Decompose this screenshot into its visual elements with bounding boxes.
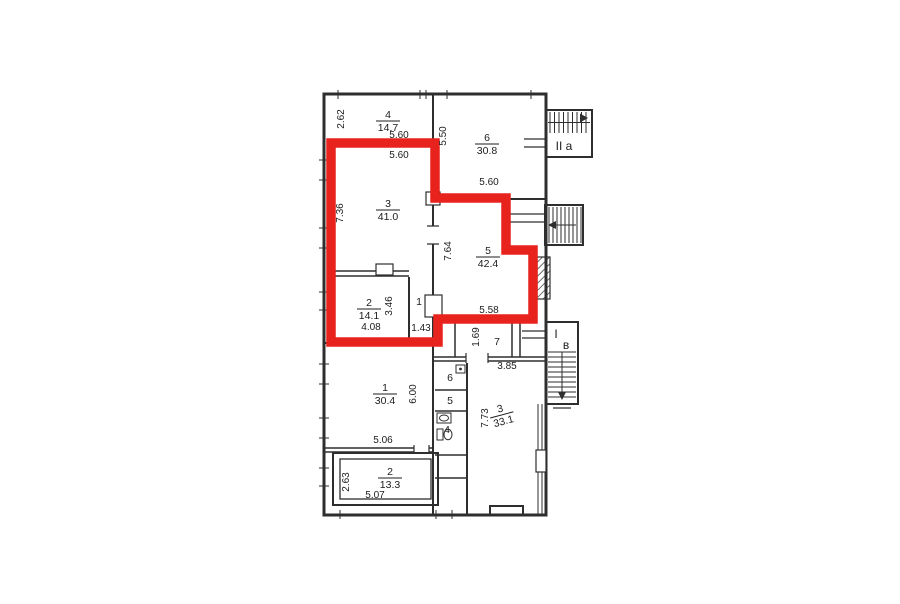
dimension-label: 5.60 <box>479 177 499 188</box>
dimension-label: 7.73 <box>480 408 491 428</box>
svg-text:2: 2 <box>387 466 393 478</box>
svg-text:4: 4 <box>385 109 391 121</box>
window-block <box>536 450 546 472</box>
room-label: 333.1 <box>487 400 517 430</box>
door-block <box>376 264 393 275</box>
dimension-label: 5.60 <box>389 130 409 141</box>
svg-text:30.8: 30.8 <box>477 145 498 157</box>
dimension-label: 3.85 <box>497 361 517 372</box>
room-label: 214.1 <box>357 297 381 322</box>
dimension-label: 7.36 <box>335 203 346 223</box>
svg-text:42.4: 42.4 <box>478 258 499 270</box>
dimension-label: 2.62 <box>336 109 347 129</box>
svg-text:4: 4 <box>444 424 450 436</box>
svg-text:6: 6 <box>447 372 453 384</box>
dimension-label: 1.69 <box>471 327 482 347</box>
dimension-label: 6.00 <box>408 384 419 404</box>
svg-text:5: 5 <box>447 395 453 407</box>
room-label: 6 <box>447 372 453 384</box>
dimension-label: 5.06 <box>373 435 393 446</box>
room-label: 7 <box>494 336 500 348</box>
room-label: 341.0 <box>376 198 400 223</box>
floorplan-canvas: 414.7630.8341.0542.4214.117130.4654333.1… <box>0 0 900 604</box>
dimension-label: 1.43 <box>411 323 431 334</box>
dimension-label: 4.08 <box>361 322 381 333</box>
dimension-label: 7.64 <box>443 241 454 261</box>
room-label: 1 <box>416 296 422 308</box>
stove-icon <box>456 365 465 373</box>
stair-label: в <box>563 338 569 352</box>
svg-text:1: 1 <box>416 296 422 308</box>
pilaster <box>425 295 442 317</box>
dimension-label: 5.50 <box>438 126 449 146</box>
stair-direction-arrow <box>558 392 566 400</box>
stair-label: I <box>554 327 557 341</box>
dimension-label: 5.07 <box>365 490 385 501</box>
room-label: 130.4 <box>373 382 397 407</box>
svg-text:33.1: 33.1 <box>492 413 515 430</box>
svg-text:30.4: 30.4 <box>375 395 396 407</box>
svg-text:2: 2 <box>366 297 372 309</box>
room-label: 5 <box>447 395 453 407</box>
svg-text:41.0: 41.0 <box>378 211 399 223</box>
dimension-label: 2.63 <box>341 472 352 492</box>
room-label: 630.8 <box>475 132 499 157</box>
dimension-label: 5.60 <box>389 150 409 161</box>
svg-text:14.1: 14.1 <box>359 310 380 322</box>
dimension-label: 3.46 <box>384 296 395 316</box>
staircase-middle <box>506 205 583 245</box>
staircase-Iv <box>536 322 578 515</box>
shaft-hatch <box>537 257 550 299</box>
dimension-label: 5.58 <box>479 305 499 316</box>
svg-text:5: 5 <box>485 245 491 257</box>
door-opening <box>466 354 488 363</box>
svg-text:3: 3 <box>385 198 391 210</box>
room-label: 4 <box>444 424 450 436</box>
door-opening <box>427 226 439 244</box>
svg-text:1: 1 <box>382 382 388 394</box>
floorplan-drawing: 414.7630.8341.0542.4214.117130.4654333.1… <box>0 0 900 604</box>
svg-text:7: 7 <box>494 336 500 348</box>
room-label: 213.3 <box>378 466 402 491</box>
sink-icon <box>437 413 451 423</box>
svg-text:3: 3 <box>496 403 505 416</box>
stair-direction-arrow <box>580 114 588 123</box>
stair-label: II a <box>556 139 573 153</box>
svg-text:6: 6 <box>484 132 490 144</box>
room-label: 542.4 <box>476 245 500 270</box>
